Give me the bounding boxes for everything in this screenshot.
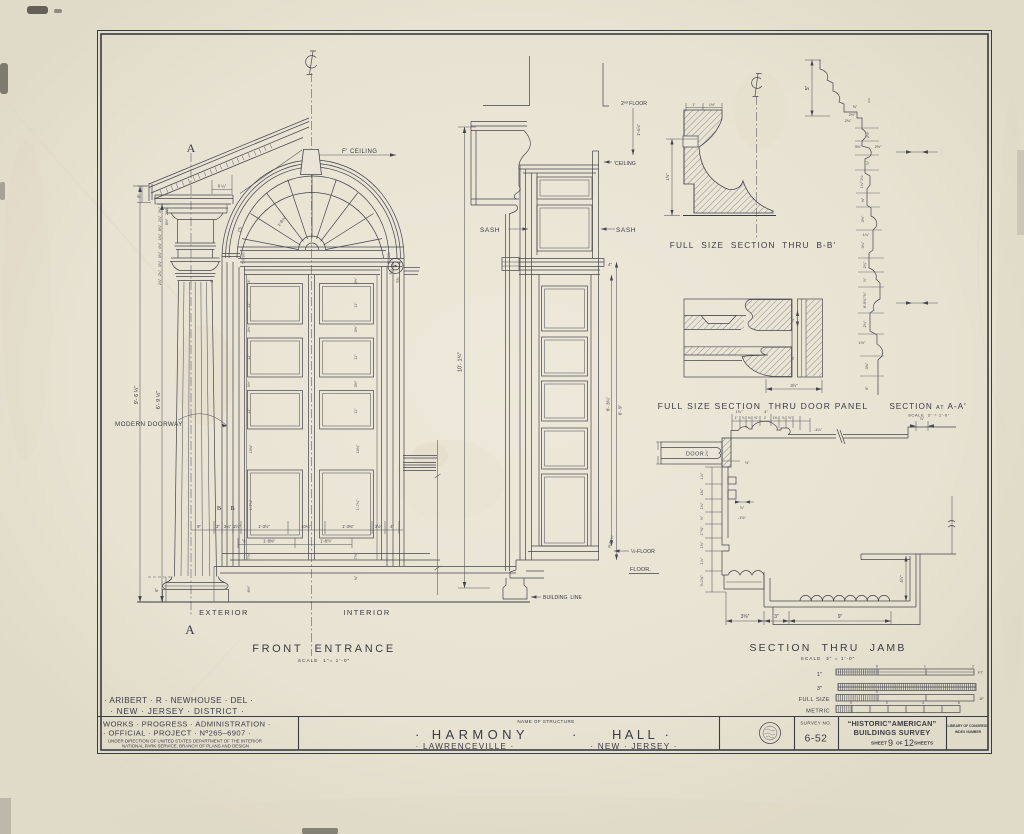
svg-text:3⅜": 3⅜" [158, 251, 162, 258]
svg-text:1⅞": 1⅞" [700, 472, 704, 479]
svg-text:9′- 6 ¼": 9′- 6 ¼" [134, 386, 140, 405]
svg-text:8": 8" [137, 194, 142, 198]
svg-text:6′-9⅜"⁾⅜": 6′-9⅜"⁾⅜" [863, 291, 867, 308]
svg-text:2ⁿᵈ FLOOR: 2ⁿᵈ FLOOR [621, 101, 647, 107]
svg-text:BUILDINGS SURVEY: BUILDINGS SURVEY [854, 728, 931, 737]
svg-text:11": 11" [247, 408, 251, 414]
svg-text:3½": 3½" [790, 383, 798, 388]
svg-text:6 ¼": 6 ¼" [218, 184, 227, 189]
svg-text:NATIONAL PARK SERVICE, BRANCH: NATIONAL PARK SERVICE, BRANCH OF PLANS A… [122, 743, 249, 748]
svg-text:8½": 8½" [247, 585, 251, 592]
svg-text:10¼": 10¼" [301, 524, 311, 529]
svg-text:10¾": 10¾" [249, 444, 253, 453]
svg-text:10¼": 10¼" [356, 444, 360, 453]
svg-text:SURVEY NO.: SURVEY NO. [800, 721, 831, 726]
svg-text:FRONT ENTRANCE: FRONT ENTRANCE [252, 643, 396, 655]
svg-text:4": 4" [608, 262, 612, 267]
svg-text:-1½": -1½" [738, 516, 747, 520]
svg-text:3½": 3½" [861, 215, 865, 222]
svg-text:3¼": 3¼" [861, 241, 865, 248]
svg-text:⅝": ⅝" [853, 105, 858, 109]
svg-text:⅞: ⅞ [782, 416, 785, 420]
svg-text:4": 4" [390, 524, 394, 529]
svg-text:⅞": ⅞" [791, 317, 795, 322]
svg-text:2⅞": 2⅞" [158, 215, 162, 222]
svg-text:6′- 9": 6′- 9" [618, 404, 623, 415]
svg-text:2⅞": 2⅞" [158, 278, 162, 285]
svg-text:· NEW · JERSEY ·: · NEW · JERSEY · [590, 742, 677, 751]
svg-text:LIBRARY OF CONGRESS: LIBRARY OF CONGRESS [948, 724, 990, 728]
svg-text:11": 11" [247, 302, 251, 308]
svg-text:9": 9" [197, 524, 201, 529]
svg-text:3": 3" [774, 614, 779, 620]
svg-text:1⅜": 1⅜" [736, 410, 743, 414]
svg-text:½-1¾": ½-1¾" [700, 575, 704, 587]
svg-text:2⅞": 2⅞" [165, 208, 169, 215]
svg-text:1⅜": 1⅜" [700, 541, 704, 548]
svg-text:FULL SIZE: FULL SIZE [799, 697, 830, 703]
svg-text:5½⁾3½: 5½⁾3½ [387, 251, 391, 263]
svg-text:FULL SIZE SECTION THRU DOOR P: FULL SIZE SECTION THRU DOOR PANEL [658, 401, 869, 411]
svg-text:1"⁾¾": 1"⁾¾" [700, 526, 704, 536]
svg-text:3½": 3½" [354, 380, 358, 387]
svg-text:“HISTORIC”AMERICAN”: “HISTORIC”AMERICAN” [848, 719, 937, 728]
svg-text:3⅛": 3⅛" [158, 260, 162, 267]
svg-text:3½": 3½" [354, 277, 358, 284]
svg-text:4⅛": 4⅛" [158, 242, 162, 249]
svg-text:3½": 3½" [247, 380, 251, 387]
svg-text:WORKS · PROGRESS · ADMINISTRAT: WORKS · PROGRESS · ADMINISTRATION · [103, 720, 271, 729]
svg-text:1′-3⅜": 1′-3⅜" [342, 524, 354, 529]
svg-text:FULL SIZE SECTION THRU B-B: FULL SIZE SECTION THRU B-B′ [670, 240, 836, 250]
svg-text:½: ½ [242, 539, 246, 544]
svg-text:½-FLOOR: ½-FLOOR [631, 548, 655, 555]
svg-text:2½": 2½" [233, 524, 241, 529]
svg-text:12: 12 [904, 738, 914, 748]
svg-text:1⅛": 1⅛" [700, 502, 704, 509]
svg-text:1¼": 1¼" [863, 233, 870, 237]
svg-text:1′-3½": 1′-3½" [258, 524, 270, 529]
svg-text:3½": 3½" [855, 145, 862, 149]
svg-text:· HARMONY: · HARMONY [415, 727, 529, 742]
svg-text:1: 1 [924, 665, 926, 669]
svg-text:SHEET: SHEET [871, 741, 887, 747]
svg-text:1¾": 1¾" [700, 488, 704, 495]
svg-text:11": 11" [354, 408, 358, 414]
svg-text:9": 9" [838, 614, 843, 620]
svg-text:6": 6" [154, 588, 159, 592]
svg-text:-1¼": -1¼" [814, 428, 823, 432]
svg-text:3¾": 3¾" [865, 362, 869, 369]
svg-text:1": 1" [817, 672, 822, 678]
svg-text:4½": 4½" [899, 575, 904, 583]
svg-text:2: 2 [764, 416, 766, 420]
svg-text:DOOR: DOOR [686, 452, 704, 458]
svg-text:⅞": ⅞" [863, 277, 867, 282]
svg-text:8⅛": 8⅛" [158, 224, 162, 231]
svg-text:11": 11" [354, 354, 358, 360]
svg-text:⅞: ⅞ [742, 416, 745, 420]
svg-text:′CEILING: ′CEILING [614, 161, 636, 167]
svg-text:3": 3" [216, 524, 220, 529]
svg-text:⅞": ⅞" [866, 160, 870, 165]
svg-text:1⅝": 1⅝" [665, 173, 670, 181]
svg-text:F′ CEILING: F′ CEILING [342, 149, 377, 155]
svg-text:5½⁾3½: 5½⁾3½ [242, 251, 246, 263]
svg-text:3½": 3½" [375, 524, 383, 529]
svg-text:3¾": 3¾" [158, 206, 162, 213]
svg-text:3½": 3½" [354, 325, 358, 332]
svg-text:FT: FT [978, 670, 983, 675]
svg-text:2⅝": 2⅝" [705, 449, 709, 456]
svg-text:SHEETS: SHEETS [914, 741, 934, 747]
svg-text:6-52: 6-52 [804, 733, 827, 745]
svg-text:2¼": 2¼" [863, 261, 867, 268]
svg-text:7½": 7½" [247, 552, 251, 559]
svg-text:4: 4 [922, 701, 924, 705]
svg-text:3": 3" [817, 686, 822, 692]
svg-text:1′-8⅜": 1′-8⅜" [263, 539, 275, 544]
svg-text:OF: OF [896, 741, 903, 747]
svg-text:⅝": ⅝" [700, 515, 704, 520]
svg-text:3¼": 3¼" [224, 524, 232, 529]
svg-text:FLOOR.: FLOOR. [630, 567, 651, 573]
svg-text:MODERN DOORWAY: MODERN DOORWAY [115, 421, 183, 428]
svg-text:2¾": 2¾" [845, 119, 852, 123]
svg-text:SCALE 3" = 1′-0": SCALE 3" = 1′-0" [801, 656, 856, 662]
svg-text:EXTERIOR: EXTERIOR [199, 608, 249, 617]
svg-text:1⅛": 1⅛" [158, 233, 162, 240]
svg-text:· OFFICIAL · PROJECT · Nº265–6: · OFFICIAL · PROJECT · Nº265–6907 · [103, 729, 251, 738]
svg-text:⅜": ⅜" [791, 355, 795, 360]
svg-text:· NEW · JERSEY · DISTRICT ·: · NEW · JERSEY · DISTRICT · [110, 707, 245, 716]
svg-text:SECTION AT A-A′: SECTION AT A-A′ [889, 402, 966, 411]
svg-text:⅞": ⅞" [740, 506, 745, 510]
svg-text:1′-8⅞": 1′-8⅞" [320, 539, 332, 544]
svg-text:A: A [187, 141, 196, 155]
svg-text:10′- 1¾": 10′- 1¾" [458, 352, 464, 372]
svg-text:1′-4⅞": 1′-4⅞" [636, 124, 641, 136]
svg-text:6: 6 [958, 701, 960, 705]
svg-text:B: B [217, 505, 222, 512]
svg-text:2½": 2½" [875, 145, 882, 149]
svg-text:B: B [230, 505, 235, 512]
svg-text:SASH: SASH [616, 227, 636, 234]
svg-text:1⅞": 1⅞" [700, 557, 704, 564]
svg-text:6′- 3¾": 6′- 3¾" [606, 397, 611, 412]
svg-text:⅞": ⅞" [920, 417, 925, 421]
svg-text:SECTION THRU JAMB: SECTION THRU JAMB [749, 642, 906, 654]
svg-text:1′-7¼": 1′-7¼" [249, 499, 253, 510]
svg-text:11": 11" [247, 354, 251, 360]
svg-text:· LAWRENCEVILLE ·: · LAWRENCEVILLE · [416, 742, 515, 751]
svg-text:·: · [572, 727, 576, 742]
svg-text:5⅜: 5⅜ [396, 277, 400, 283]
svg-text:SCALE 1"= 1′-0": SCALE 1"= 1′-0" [298, 658, 350, 664]
svg-text:1′-7¼": 1′-7¼" [356, 499, 360, 510]
svg-text:6′- 9 ½": 6′- 9 ½" [155, 391, 162, 410]
svg-text:· ARIBERT · R · NEWHOUSE · DEL: · ARIBERT · R · NEWHOUSE · DEL · [104, 696, 253, 705]
svg-text:¾": ¾" [354, 575, 358, 580]
svg-text:2¾": 2¾" [158, 269, 162, 276]
svg-text:0: 0 [850, 701, 852, 705]
svg-text:7½": 7½" [354, 552, 358, 559]
svg-text:11": 11" [354, 302, 358, 308]
svg-text:3¼: 3¼ [389, 269, 393, 275]
svg-text:6: 6 [876, 690, 878, 694]
svg-text:2: 2 [886, 701, 888, 705]
svg-text:8½": 8½" [165, 218, 169, 225]
svg-text:1½": 1½" [859, 341, 866, 345]
svg-text:INTERIOR: INTERIOR [343, 608, 390, 617]
svg-text:A: A [185, 622, 195, 637]
svg-text:SCALE 3" = 1′-0": SCALE 3" = 1′-0" [908, 413, 950, 418]
svg-text:2½": 2½" [849, 113, 856, 117]
svg-text:2: 2 [972, 665, 974, 669]
svg-text:1¼"⁾1⅛: 1¼"⁾1⅛ [860, 175, 864, 189]
svg-text:6: 6 [876, 665, 878, 669]
svg-text:3⅝": 3⅝" [741, 614, 750, 620]
svg-text:½": ½" [745, 461, 750, 465]
svg-text:2½": 2½" [866, 131, 870, 138]
svg-text:1⅜: 1⅜ [773, 416, 778, 420]
svg-text:1½": 1½" [709, 103, 716, 107]
svg-text:NAME OF STRUCTURE: NAME OF STRUCTURE [517, 719, 574, 724]
svg-text:9: 9 [888, 738, 893, 748]
svg-text:3½": 3½" [247, 325, 251, 332]
svg-text:1F: 1F [979, 696, 984, 701]
svg-text:HALL ·: HALL · [612, 727, 672, 742]
svg-text:⅜: ⅜ [748, 416, 751, 420]
svg-text:BUILDING LINE: BUILDING LINE [543, 595, 582, 601]
svg-text:INDEX NUMBER: INDEX NUMBER [955, 730, 982, 734]
svg-text:2¼": 2¼" [863, 320, 867, 327]
svg-text:¾": ¾" [861, 197, 865, 202]
svg-text:SASH: SASH [480, 227, 500, 234]
svg-text:METRIC: METRIC [806, 709, 830, 715]
svg-text:5": 5" [805, 86, 811, 91]
